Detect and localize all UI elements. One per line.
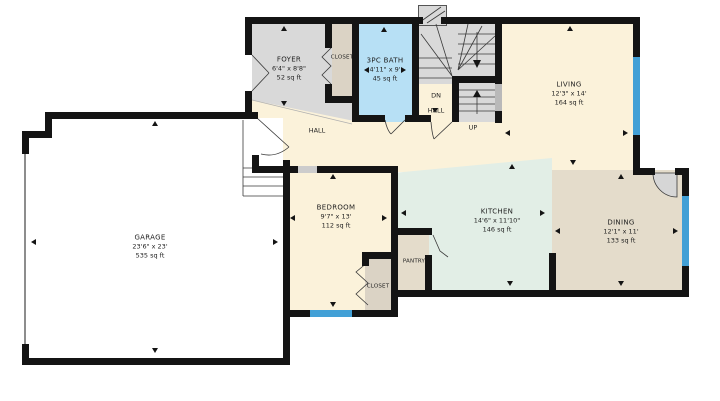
- room-label-pantry: PANTRY: [403, 258, 425, 265]
- wall-segment: [359, 115, 385, 122]
- dimension-arrow-r: [673, 228, 678, 234]
- wall-segment: [633, 168, 655, 175]
- wall-segment: [549, 253, 556, 297]
- wall-segment: [22, 131, 29, 154]
- wall-segment: [245, 17, 423, 24]
- wall-segment: [425, 255, 432, 297]
- dimension-arrow-u: [152, 121, 158, 126]
- dimension-arrow-u: [509, 164, 515, 169]
- wall-segment: [412, 24, 419, 122]
- room-label-dining: DINING 12'1" x 11' 133 sq ft: [603, 219, 638, 246]
- dimension-arrow-r: [382, 215, 387, 221]
- garage-door-line: [24, 154, 26, 344]
- wall-segment: [352, 24, 359, 122]
- wall-segment: [245, 17, 252, 55]
- window-dining: [682, 196, 689, 266]
- wall-segment: [317, 166, 398, 173]
- label-stair-hall: HALL: [428, 107, 445, 116]
- room-label-kitchen: KITCHEN 14'6" x 11'10" 146 sq ft: [474, 208, 520, 235]
- wall-segment: [392, 290, 689, 297]
- wall-segment: [419, 115, 431, 122]
- wall-segment: [391, 166, 398, 317]
- dimension-arrow-d: [152, 348, 158, 353]
- dimension-arrow-d: [330, 302, 336, 307]
- dimension-arrow-d: [507, 281, 513, 286]
- dimension-arrow-l: [401, 210, 406, 216]
- dimension-arrow-d: [281, 101, 287, 106]
- room-label-living: LIVING 12'3" x 14' 164 sq ft: [551, 81, 586, 108]
- wall-segment: [283, 310, 310, 317]
- room-label-foyer: FOYER 6'4" x 8'8" 52 sq ft: [272, 56, 306, 83]
- dimension-arrow-r: [540, 210, 545, 216]
- dimension-arrow-r: [273, 239, 278, 245]
- wall-segment: [633, 17, 640, 59]
- floor-plan: FOYER 6'4" x 8'8" 52 sq ft CLOSET 3PC BA…: [0, 0, 720, 401]
- dimension-arrow-l: [505, 130, 510, 136]
- wall-segment: [22, 358, 290, 365]
- room-label-foyer-closet: CLOSET: [331, 54, 354, 61]
- room-label-garage: GARAGE 23'6" x 23' 535 sq ft: [132, 234, 167, 261]
- dimension-arrow-u: [281, 26, 287, 31]
- label-hall: HALL: [309, 127, 326, 136]
- window-living: [633, 57, 640, 135]
- wall-segment: [405, 115, 412, 122]
- dimension-arrow-l: [555, 228, 560, 234]
- bedroom-door-opening: [298, 166, 317, 173]
- wall-segment: [252, 166, 298, 173]
- wall-segment: [352, 310, 398, 317]
- dimension-arrow-u: [330, 174, 336, 179]
- wall-segment: [441, 17, 640, 24]
- dimension-arrow-l: [290, 215, 295, 221]
- dimension-arrow-u: [567, 26, 573, 31]
- wall-segment: [283, 160, 290, 365]
- label-stair-dn: DN: [431, 92, 441, 101]
- dimension-arrow-l: [31, 239, 36, 245]
- linework-overlay: [0, 0, 720, 401]
- room-label-bedroom-closet: CLOSET: [367, 283, 390, 290]
- room-label-bath: 3PC BATH 4'11" x 9' 45 sq ft: [367, 57, 404, 84]
- dimension-arrow-d: [618, 281, 624, 286]
- dimension-arrow-r: [623, 130, 628, 136]
- wall-segment: [682, 168, 689, 198]
- wall-niche: [495, 84, 502, 111]
- room-label-bedroom: BEDROOM 9'7" x 13' 112 sq ft: [317, 204, 356, 231]
- window-bedroom: [310, 310, 352, 317]
- dimension-arrow-u: [381, 27, 387, 32]
- wall-segment: [391, 228, 432, 235]
- dimension-arrow-d: [570, 160, 576, 165]
- wall-segment: [362, 252, 369, 266]
- dimension-arrow-u: [618, 174, 624, 179]
- label-stair-up: UP: [469, 124, 478, 133]
- wall-segment: [325, 24, 332, 48]
- wall-segment: [45, 112, 258, 119]
